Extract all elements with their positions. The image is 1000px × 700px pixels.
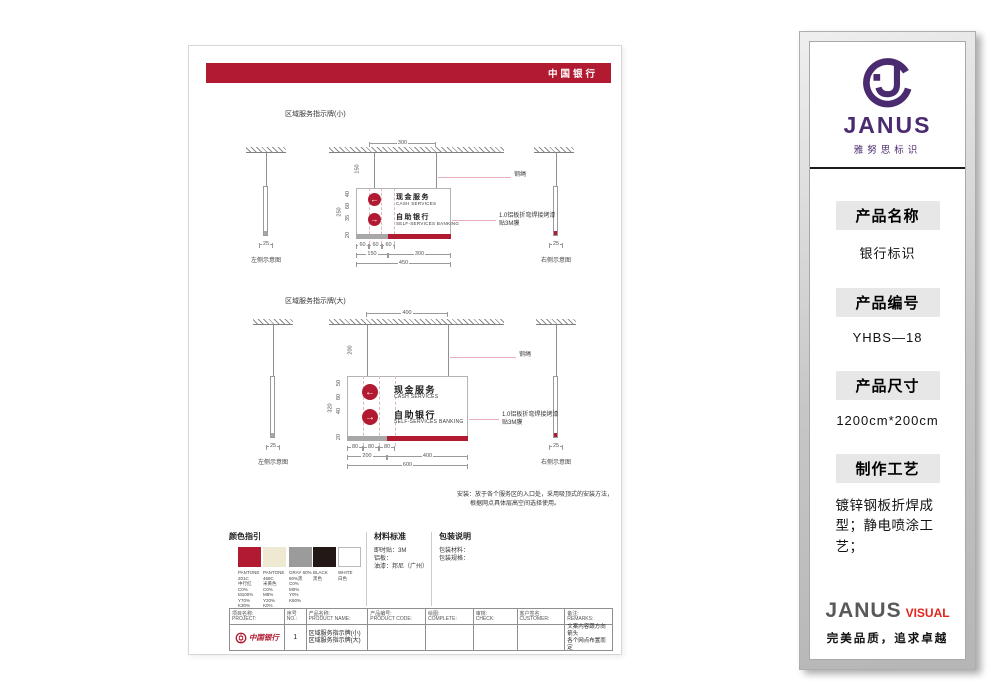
dim-row: 40 <box>345 191 351 197</box>
footer-brand-line: JANUSVISUAL <box>825 599 949 623</box>
panel-material-note: 1.0铝板折弯焊接烤漆 贴3M膜 <box>499 213 555 228</box>
title-block-col-no: 序号NO.: 1 <box>285 609 307 650</box>
section-divider <box>431 532 432 606</box>
logo-divider <box>810 167 965 169</box>
arrow-right-icon: → <box>362 409 378 425</box>
ceiling-hatch-right <box>534 147 574 153</box>
dim-strip: 20 <box>345 232 351 238</box>
side-view-rod <box>263 186 268 236</box>
footer-janus: JANUS <box>825 599 901 622</box>
rod-tip-red <box>554 433 557 437</box>
dim-split: 200 <box>347 456 387 464</box>
janus-brand-sub: 雅努思标识 <box>854 142 922 156</box>
dim-row: 40 <box>336 408 342 414</box>
left-view-label: 左侧示意图 <box>251 258 281 266</box>
bank-of-china-logo <box>235 632 247 644</box>
panel-strip-red <box>388 234 451 239</box>
section-value: 银行标识 <box>859 243 915 262</box>
title-block-col-remarks: 备注:REMARKS: 文案内容跟方向箭头各个网点布置而定 <box>565 609 612 650</box>
color-swatch <box>313 547 336 567</box>
title-block: 项目名称:PROJECT: 中国银行 序号NO.: 1 产品名称:PRODUCT… <box>229 608 613 651</box>
wire-leader-line <box>450 357 516 358</box>
panel-material-note: 1.0铝板折弯焊接烤漆 贴3M膜 <box>502 412 558 427</box>
arrow-left-icon: ← <box>368 193 381 206</box>
dim-side-width: 25 <box>549 244 563 252</box>
ceiling-hatch <box>329 147 504 153</box>
dim-side-width: 25 <box>266 446 280 454</box>
dim-row: 60 <box>345 203 351 209</box>
side-view-wire <box>273 325 274 376</box>
swatch-spec: BLACK黑色 <box>313 570 339 581</box>
dim-row: 80 <box>336 394 342 400</box>
packing-title: 包装说明 <box>439 531 471 542</box>
arrow-right-icon: → <box>368 213 381 226</box>
side-view-wire <box>556 153 557 186</box>
color-guide-title: 颜色指引 <box>229 531 261 542</box>
steel-wire-label: 钢绳 <box>519 352 531 360</box>
project-name: 中国银行 <box>249 634 279 641</box>
side-view-rod <box>270 376 275 438</box>
ceiling-hatch <box>329 319 504 325</box>
drawing2-title: 区域服务指示牌(大) <box>285 296 346 306</box>
section-product-size: 产品尺寸 1200cm*200cm <box>836 371 940 428</box>
spec-sheet: 中国银行 区域服务指示牌(小) 300 150 钢绳 ← 现金服务 CASH S… <box>188 45 622 655</box>
footer-visual: VISUAL <box>906 606 950 620</box>
swatch-spec: GRAY 60%60%黑C0%M0%Y0%K60% <box>289 570 315 603</box>
drawing1-title: 区域服务指示牌(小) <box>285 109 346 119</box>
color-swatch <box>338 547 361 567</box>
wire-leader-line <box>438 177 511 178</box>
sign-row1-en: CASH SERVICES <box>396 201 436 206</box>
title-block-col-customer: 客户签名:CUSTOMER: <box>518 609 566 650</box>
side-view-wire <box>556 325 557 376</box>
panel-strip-red <box>387 436 468 441</box>
sign-row2-en: SELF-SERVICES BANKING <box>396 221 459 226</box>
title-block-col-check: 审核:CHECK: <box>474 609 518 650</box>
side-view-rod <box>553 376 558 438</box>
janus-logo-icon <box>860 55 916 111</box>
rod-tip-red <box>554 231 557 235</box>
packing-lines: 包装材料： 包装规格： <box>439 547 469 563</box>
section-product-code: 产品编号 YHBS—18 <box>836 288 940 345</box>
serial-no: 1 <box>285 625 306 650</box>
section-value: 镀锌钢板折焊成型；静电喷涂工艺； <box>836 496 940 557</box>
dim-overall-height: 320 <box>328 403 334 412</box>
sidebar: JANUS 雅努思标识 产品名称 银行标识 产品编号 YHBS—18 产品尺寸 … <box>809 41 966 660</box>
color-swatch <box>238 547 261 567</box>
arrow-left-icon: ← <box>362 384 378 400</box>
section-header: 产品尺寸 <box>836 371 940 400</box>
title-block-col-project: 项目名称:PROJECT: 中国银行 <box>230 609 285 650</box>
section-header: 制作工艺 <box>836 454 940 483</box>
steel-wire <box>448 325 449 376</box>
bank-title: 中国银行 <box>548 66 598 80</box>
note-leader-line <box>469 419 499 420</box>
steel-wire <box>367 325 368 376</box>
dim-side-width: 25 <box>549 446 563 454</box>
material-lines: 即时贴：3M 铝板： 油漆：邦尼（广州） <box>374 547 428 571</box>
sheet-header-bar: 中国银行 <box>206 63 611 83</box>
footer-slogan: 完美品质，追求卓越 <box>827 630 949 646</box>
section-craft: 制作工艺 镀锌钢板折焊成型；静电喷涂工艺； <box>836 454 940 557</box>
dim-side-width: 25 <box>259 244 273 252</box>
dim-split: 150 <box>356 254 388 262</box>
janus-brand-text: JANUS <box>844 112 932 139</box>
color-swatch <box>289 547 312 567</box>
color-swatch <box>263 547 286 567</box>
section-divider <box>366 532 367 606</box>
swatch-spec: PANTONE468C米黄色C0%M8%Y20%K0% <box>263 570 289 609</box>
install-note-line1: 安装：放于各个服务区的入口处，采用吸顶式的安装方法， <box>457 492 613 500</box>
title-block-col-product: 产品名称:PRODUCT NAME: 区域服务指示牌(小)区域服务指示牌(大) <box>307 609 369 650</box>
rod-tip-gray <box>271 433 274 437</box>
sign-row1-en: CASH SERVICES <box>394 394 438 400</box>
title-block-col-complete: 绘图:COMPLETE: <box>426 609 474 650</box>
dim-split: 400 <box>387 456 468 464</box>
swatch-spec: PANTONE201C中行红C0%M100%Y70%K30% <box>238 570 264 609</box>
left-view-label: 左侧示意图 <box>258 460 288 468</box>
section-header: 产品编号 <box>836 288 940 317</box>
sidebar-footer: JANUSVISUAL 完美品质，追求卓越 <box>825 599 949 659</box>
section-value: YHBS—18 <box>853 330 923 345</box>
dim-total: 600 <box>347 465 468 473</box>
section-value: 1200cm*200cm <box>836 413 938 428</box>
dim-row: 35 <box>345 215 351 221</box>
rod-tip-gray <box>264 231 267 235</box>
steel-wire <box>374 153 375 188</box>
dim-row: 50 <box>336 380 342 386</box>
panel-strip-gray <box>356 234 388 239</box>
dim-overall-height: 250 <box>337 207 343 216</box>
steel-wire-label: 钢绳 <box>514 172 526 180</box>
sidebar-frame: JANUS 雅努思标识 产品名称 银行标识 产品编号 YHBS—18 产品尺寸 … <box>799 31 976 670</box>
install-note-line2: 根据网点具体层高空间选择使用。 <box>470 501 560 509</box>
title-block-col-code: 产品编号:PRODUCT CODE: <box>368 609 426 650</box>
dim-strip: 20 <box>336 434 342 440</box>
side-view-wire <box>266 153 267 186</box>
swatch-spec: WHITE白色 <box>338 570 364 581</box>
section-header: 产品名称 <box>836 201 940 230</box>
steel-wire <box>436 153 437 188</box>
dim-wire-height: 200 <box>348 345 354 354</box>
panel-strip-gray <box>347 436 387 441</box>
section-product-name: 产品名称 银行标识 <box>836 201 940 262</box>
janus-logo-block: JANUS 雅努思标识 <box>844 42 932 156</box>
dim-wire-height: 150 <box>355 164 361 173</box>
side-view-rod <box>553 186 558 236</box>
right-view-label: 右侧示意图 <box>541 258 571 266</box>
note-leader-line <box>452 220 496 221</box>
right-view-label: 右侧示意图 <box>541 460 571 468</box>
sign-row2-en: SELF-SERVICES BANKING <box>394 419 464 425</box>
dim-total: 450 <box>356 263 451 271</box>
material-title: 材料标准 <box>374 531 406 542</box>
